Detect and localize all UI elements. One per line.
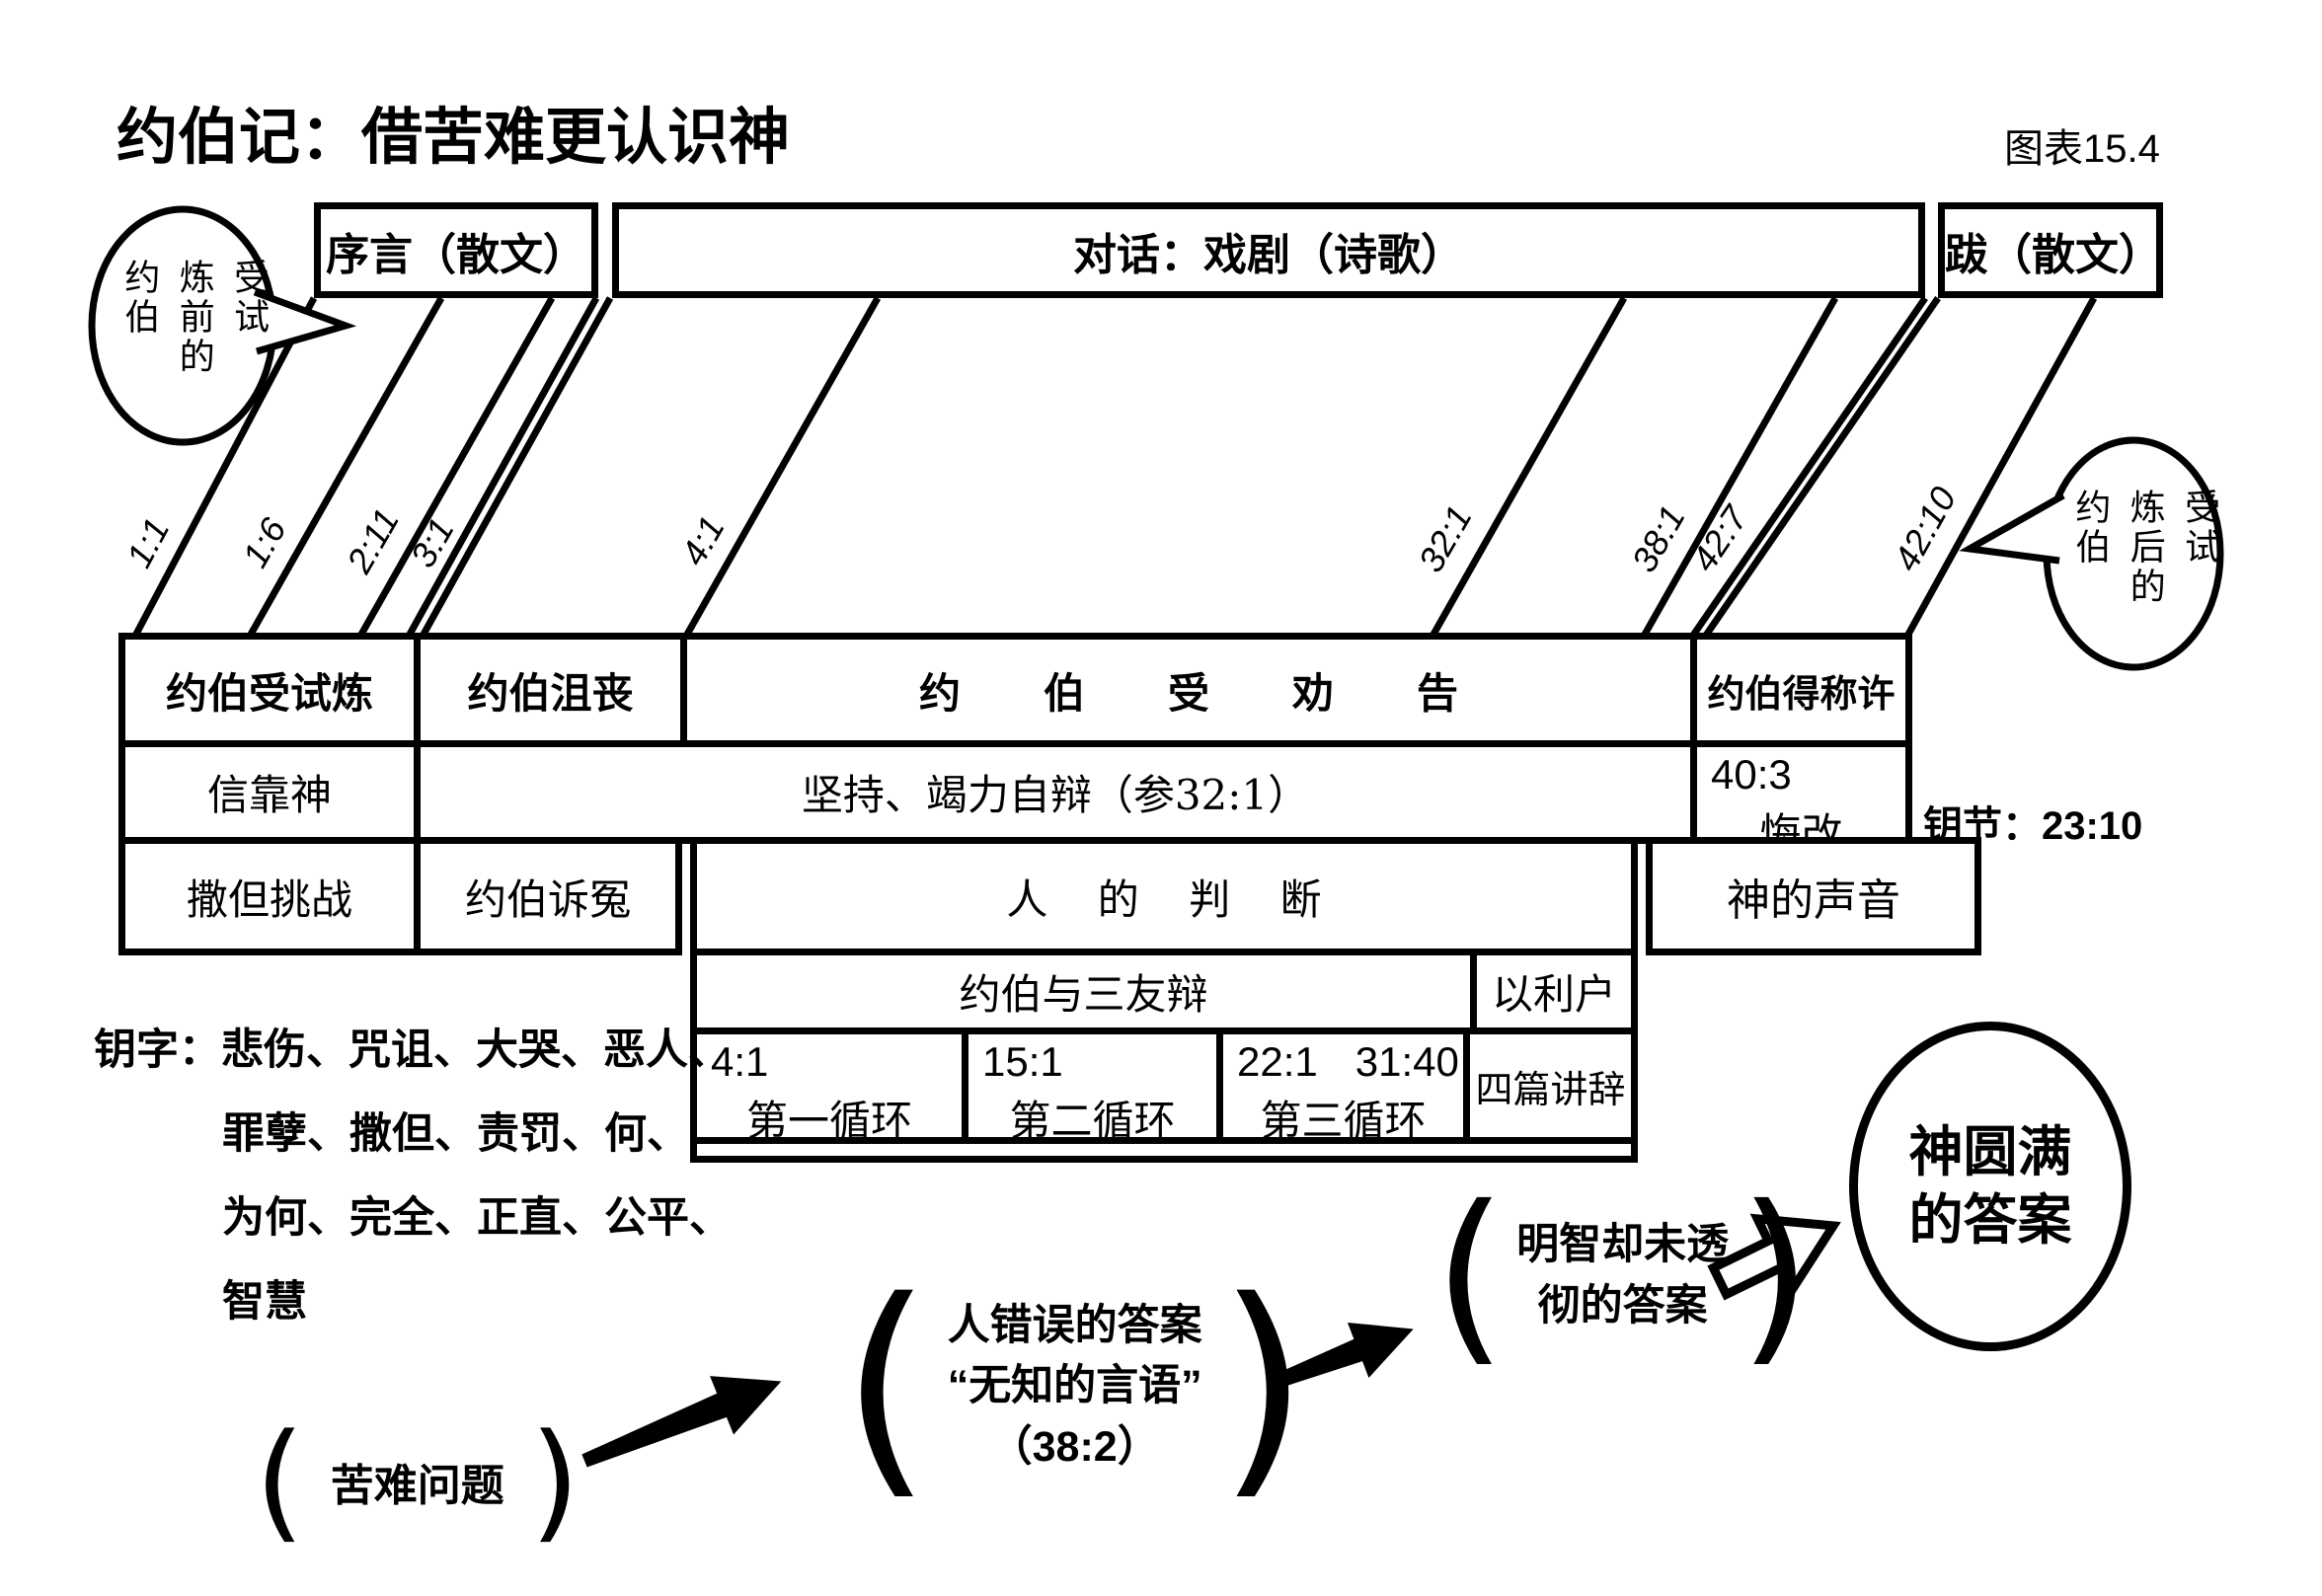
open-paren-icon: ( bbox=[1433, 1195, 1507, 1355]
bubble-right-col3: 受试 bbox=[2179, 489, 2219, 568]
open-paren-icon: ( bbox=[255, 1426, 305, 1536]
wrong-answer-line: （38:2） bbox=[948, 1417, 1202, 1478]
band-epilogue: 跋（散文） bbox=[1938, 202, 2163, 298]
cell-mans-judgment: 人的判断 bbox=[957, 867, 1371, 927]
bubble-right-col1: 约伯 bbox=[2069, 489, 2110, 568]
close-paren-icon: ) bbox=[1218, 1288, 1309, 1485]
key-words-list: 钥字：悲伤、咒诅、大哭、恶人、 罪孽、撒但、责罚、何、 为何、完全、正直、公平、… bbox=[94, 1009, 732, 1344]
cell-job-dejected: 约伯沮丧 bbox=[414, 633, 687, 747]
cell-four-speeches: 四篇讲辞 bbox=[1463, 1027, 1638, 1144]
bubble-left-col2: 炼前的 bbox=[173, 259, 213, 377]
speech-bubble-left-text: 约伯 炼前的 受试 bbox=[118, 259, 269, 377]
flow-problem-group: ( 苦难问题 ) bbox=[255, 1409, 580, 1553]
cycle2-ref: 15:1 bbox=[968, 1038, 1063, 1086]
page-title: 约伯记：借苦难更认识神 bbox=[116, 87, 790, 176]
cell-satan-challenge: 撒但挑战 bbox=[118, 837, 421, 955]
bubble-right-col2: 炼后的 bbox=[2124, 489, 2164, 607]
close-paren-icon: ) bbox=[530, 1426, 580, 1536]
cycle1-label: 第一循环 bbox=[697, 1088, 962, 1148]
speech-bubble-right-text: 约伯 炼后的 受试 bbox=[2069, 489, 2219, 607]
cycle3-label: 第三循环 bbox=[1223, 1088, 1463, 1148]
bubble-left-col3: 受试 bbox=[228, 259, 269, 338]
arrow-1-icon bbox=[573, 1352, 793, 1490]
cell-elihu: 以利户 bbox=[1470, 949, 1638, 1034]
flow-partial-answer-group: ( 明智却未透 彻的答案 ) bbox=[1433, 1182, 1812, 1368]
cell-job-tested: 约伯受试炼 bbox=[118, 633, 421, 747]
wrong-answer-line: 人错误的答案 bbox=[948, 1296, 1202, 1356]
cell-job-complaint: 约伯诉冤 bbox=[414, 837, 682, 955]
cycle2-label: 第二循环 bbox=[968, 1088, 1216, 1148]
flow-wrong-answer-text: 人错误的答案 “无知的言语” （38:2） bbox=[932, 1296, 1218, 1477]
cell-debate-three-friends: 约伯与三友辩 bbox=[690, 949, 1477, 1034]
bubble-left-col1: 约伯 bbox=[118, 259, 159, 338]
repent-ref: 40:3 bbox=[1697, 751, 1792, 798]
band-dialogue: 对话：戏剧（诗歌） bbox=[612, 202, 1925, 298]
partial-answer-line: 明智却未透 bbox=[1516, 1214, 1729, 1275]
job-chart-page: 约伯记：借苦难更认识神 图表15.4 序言（散文） 对话：戏剧（诗歌） 跋（散文… bbox=[0, 0, 2322, 1596]
band-prologue: 序言（散文） bbox=[314, 202, 598, 298]
cell-job-commended: 约伯得称许 bbox=[1690, 633, 1912, 747]
chapter-diagonal-lines bbox=[133, 298, 2094, 640]
cell-persist-defend: 坚持、竭力自辩（参32:1） bbox=[414, 740, 1697, 844]
flow-wrong-answer-group: ( 人错误的答案 “无知的言语” （38:2） ) bbox=[841, 1268, 1308, 1505]
flow-partial-answer-text: 明智却未透 彻的答案 bbox=[1507, 1214, 1739, 1337]
figure-label: 图表15.4 bbox=[2004, 116, 2160, 174]
cycle3-refs: 22:131:40 bbox=[1223, 1038, 1459, 1086]
open-paren-icon: ( bbox=[841, 1288, 932, 1485]
full-answer-line: 神圆满 bbox=[1908, 1118, 2071, 1186]
cell-trust-god: 信靠神 bbox=[118, 740, 421, 844]
key-words-line: 为何、完全、正直、公平、 bbox=[94, 1177, 732, 1260]
full-answer-line: 的答案 bbox=[1908, 1186, 2071, 1254]
flow-problem-text: 苦难问题 bbox=[305, 1450, 530, 1513]
key-words-line: 智慧 bbox=[94, 1260, 732, 1344]
full-answer-circle: 神圆满 的答案 bbox=[1849, 1022, 2131, 1351]
cycle3-ref-start: 22:1 bbox=[1237, 1038, 1318, 1085]
close-paren-icon: ) bbox=[1739, 1195, 1812, 1355]
wrong-answer-line: “无知的言语” bbox=[948, 1356, 1202, 1416]
key-words-line: 钥字：悲伤、咒诅、大哭、恶人、 bbox=[94, 1009, 732, 1093]
cycle3-ref-end: 31:40 bbox=[1355, 1038, 1459, 1085]
key-words-line: 罪孽、撒但、责罚、何、 bbox=[94, 1093, 732, 1177]
partial-answer-line: 彻的答案 bbox=[1516, 1275, 1729, 1336]
cell-gods-voice: 神的声音 bbox=[1646, 837, 1981, 955]
cell-job-counseled: 约伯受劝告 bbox=[836, 660, 1541, 721]
